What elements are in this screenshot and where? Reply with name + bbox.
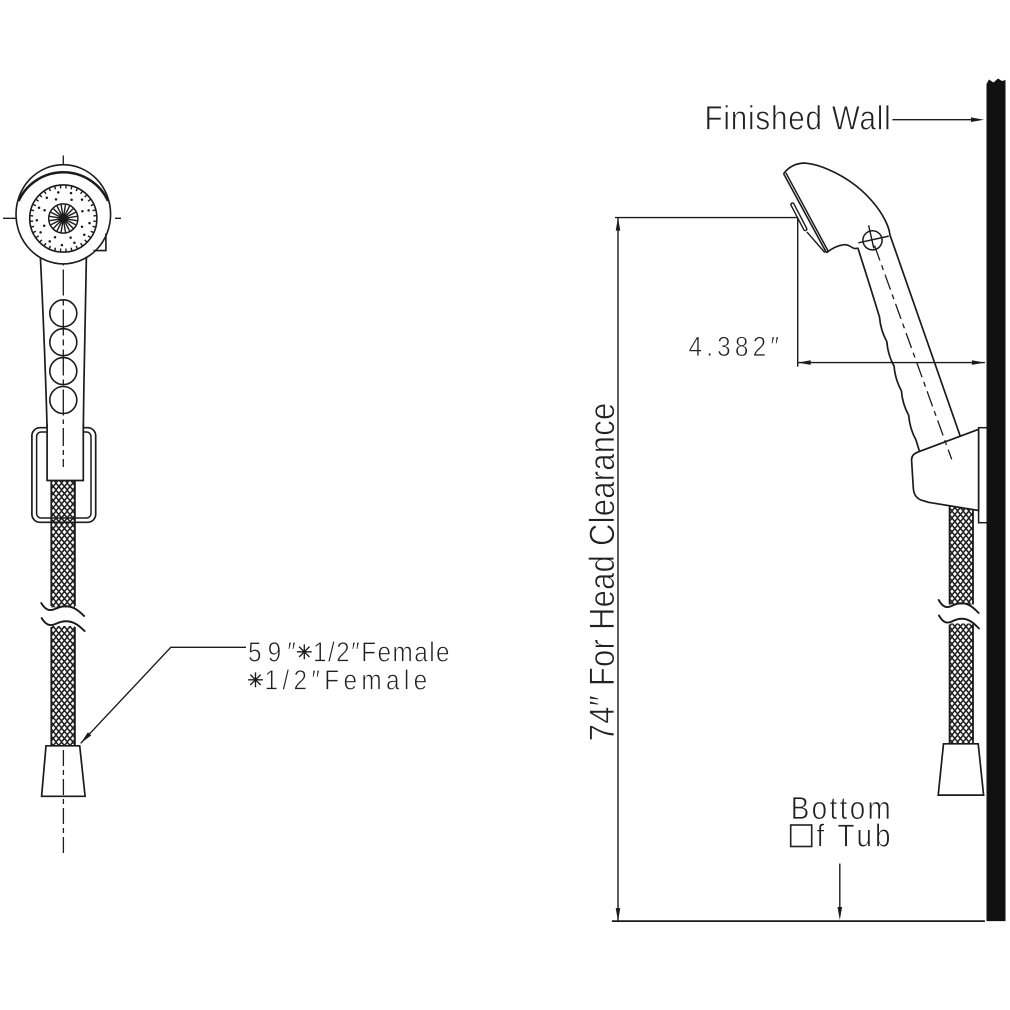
svg-text:Finished Wall: Finished Wall [704,99,890,137]
svg-text:74″ For Head Clearance: 74″ For Head Clearance [583,403,623,741]
